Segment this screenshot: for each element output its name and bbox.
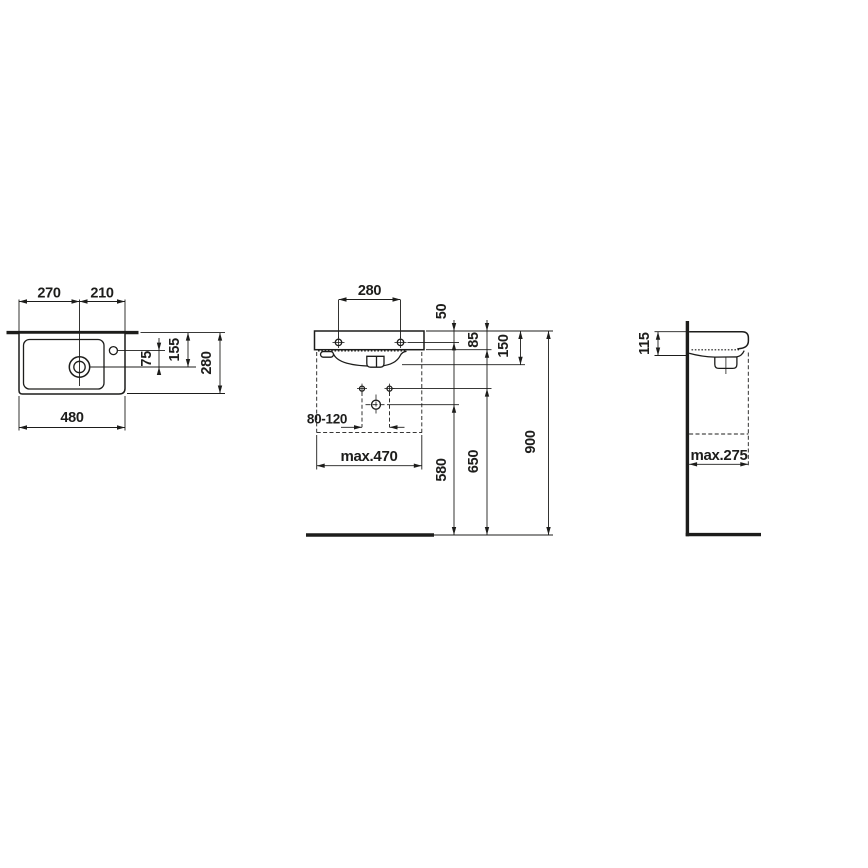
basin-outline <box>19 333 125 394</box>
arrowhead <box>485 527 489 535</box>
dim-480: 480 <box>19 410 125 430</box>
arrowhead <box>157 367 161 375</box>
arrowhead <box>72 299 80 303</box>
dim-label-80-120: 80-120 <box>307 412 347 427</box>
arrowhead <box>117 425 125 429</box>
arrowhead <box>19 425 27 429</box>
waste-outlet-icon <box>366 395 387 416</box>
front-view: 80-120 max.470 280 <box>306 283 553 535</box>
drawing-page: 270 210 480 75 155 280 <box>0 0 868 868</box>
top-view: 270 210 480 75 155 280 <box>7 286 226 431</box>
arrowhead <box>518 331 522 339</box>
dim-label-900: 900 <box>523 430 539 454</box>
arrowhead <box>546 527 550 535</box>
dim-max-470: max.470 <box>317 435 422 470</box>
side-view: 115 max.275 <box>637 321 761 536</box>
arrowhead <box>485 323 489 331</box>
dim-label-155: 155 <box>167 338 183 362</box>
rim-front <box>315 331 425 350</box>
arrowhead <box>80 299 88 303</box>
arrowhead <box>452 342 456 350</box>
arrowhead <box>656 348 660 356</box>
dim-label-85: 85 <box>466 332 482 348</box>
arrowhead <box>546 331 550 339</box>
arrowhead <box>518 357 522 365</box>
arrowhead <box>452 405 456 413</box>
overflow-outlet <box>321 352 334 358</box>
underside-curve-right <box>737 351 744 357</box>
dim-155: 155 <box>167 333 190 367</box>
dim-150: 150 <box>496 331 523 365</box>
dim-280-holes: 280 <box>339 283 401 338</box>
washbasin-technical-drawing: 270 210 480 75 155 280 <box>0 0 868 868</box>
arrowhead <box>157 343 161 351</box>
dim-label-max-275: max.275 <box>690 447 747 464</box>
dim-115: 115 <box>637 332 686 356</box>
arrowhead <box>117 299 125 303</box>
arrowhead <box>485 350 489 358</box>
arrowhead <box>339 297 347 301</box>
underside-curve-left <box>689 353 715 357</box>
dim-label-280-depth: 280 <box>199 351 215 375</box>
arrowhead <box>218 333 222 341</box>
dim-label-650: 650 <box>466 450 482 474</box>
dim-270-210: 270 210 <box>19 286 125 304</box>
arrowhead <box>414 464 422 468</box>
dim-label-280-holes: 280 <box>358 283 382 299</box>
arrowhead <box>19 299 27 303</box>
arrowhead <box>452 323 456 331</box>
dim-75: 75 <box>139 338 161 375</box>
arrowhead <box>656 332 660 340</box>
rim-profile <box>689 332 748 349</box>
arrowhead <box>390 425 398 429</box>
arrowhead <box>485 389 489 397</box>
dim-50-580: 50 580 <box>434 304 456 535</box>
dim-max-275: max.275 <box>689 447 748 467</box>
dim-label-115: 115 <box>637 332 653 355</box>
arrowhead <box>218 386 222 394</box>
dim-label-max-470: max.470 <box>340 448 397 465</box>
arrowhead <box>354 425 362 429</box>
dim-label-150: 150 <box>496 334 512 358</box>
arrowhead <box>393 297 401 301</box>
drain-trap <box>367 356 384 367</box>
arrowhead <box>317 464 325 468</box>
dim-85-650: 85 650 <box>466 320 489 535</box>
arrowhead <box>186 359 190 367</box>
dim-label-270: 270 <box>37 286 61 302</box>
dim-label-580: 580 <box>434 458 450 482</box>
dim-900: 900 <box>523 331 551 535</box>
arrowhead <box>186 333 190 341</box>
dim-label-210: 210 <box>90 286 114 302</box>
arrowhead <box>452 527 456 535</box>
dim-label-75: 75 <box>139 351 155 367</box>
dim-label-480: 480 <box>60 410 84 426</box>
dim-label-50: 50 <box>434 304 450 320</box>
dim-280-depth: 280 <box>199 333 222 394</box>
